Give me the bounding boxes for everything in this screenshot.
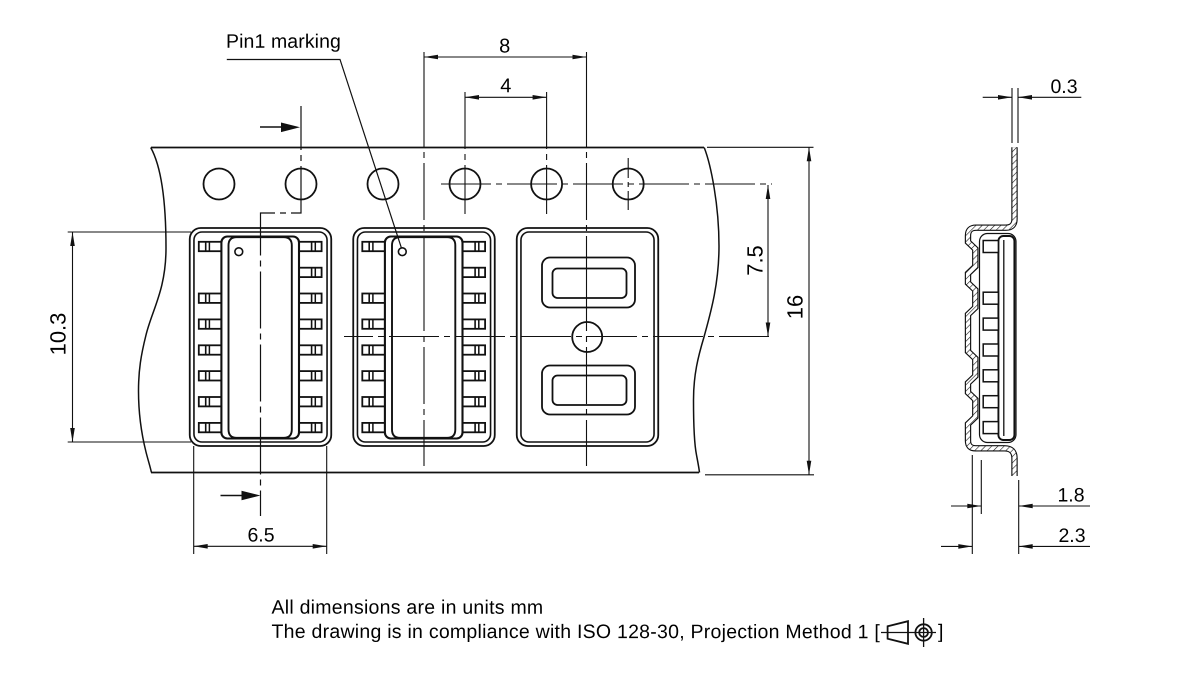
svg-text:10.3: 10.3 (45, 313, 70, 356)
svg-text:1.8: 1.8 (1057, 484, 1084, 506)
svg-text:The drawing is in compliance w: The drawing is in compliance with ISO 12… (271, 621, 880, 643)
svg-text:8: 8 (499, 35, 510, 57)
svg-text:4: 4 (500, 75, 511, 97)
svg-text:All dimensions are in units mm: All dimensions are in units mm (271, 597, 543, 619)
svg-text:7.5: 7.5 (742, 245, 767, 276)
svg-text:]: ] (938, 621, 943, 643)
svg-text:16: 16 (783, 295, 808, 319)
svg-text:0.3: 0.3 (1050, 76, 1077, 98)
svg-text:6.5: 6.5 (247, 524, 274, 546)
svg-text:Pin1 marking: Pin1 marking (226, 31, 341, 53)
svg-text:2.3: 2.3 (1058, 525, 1085, 547)
